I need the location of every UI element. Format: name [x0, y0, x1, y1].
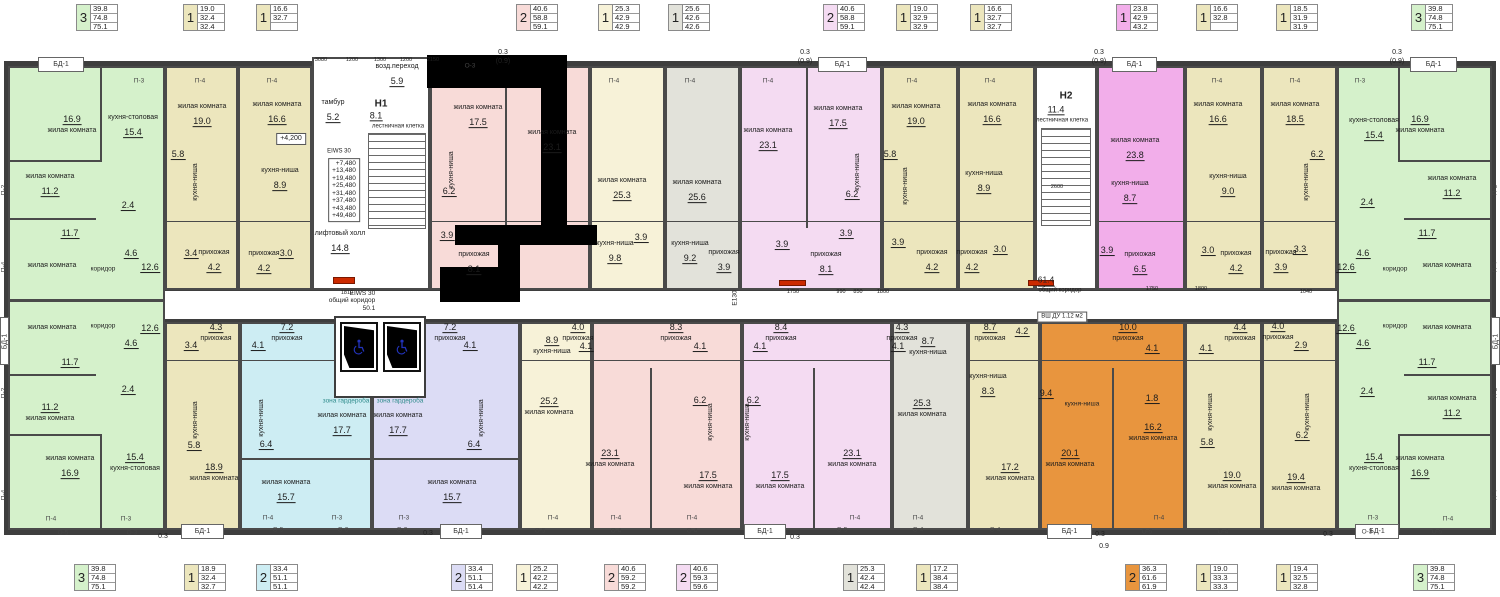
room-area: 6.2 — [845, 189, 860, 200]
room-area: 12.6 — [140, 262, 160, 273]
apartment-info-box[interactable]: 233.451.151.1 — [256, 564, 298, 591]
room-area: 23.1 — [542, 142, 562, 153]
area-values: 16.632.732.7 — [984, 5, 1011, 30]
room-area: 12.6 — [1336, 262, 1356, 273]
room-name: прихожая — [458, 251, 489, 259]
annotation-label: П-4 — [985, 77, 995, 84]
room-label: 5.8 — [1200, 432, 1215, 450]
room-name: жилая комната — [986, 475, 1035, 483]
annotation-label: 0.3 — [158, 533, 168, 541]
room-label: жилая комната11.2 — [1428, 395, 1477, 421]
room-label: 4.2 — [1015, 321, 1030, 339]
apartment-info-box[interactable]: 125.342.442.4 — [843, 564, 885, 591]
annotation-label: 0.3 — [1095, 531, 1105, 539]
room-label: жилая комната23.8 — [1111, 137, 1160, 163]
room-area: 8.1 — [467, 264, 482, 275]
room-area: 4.6 — [124, 338, 139, 349]
apartment-info-box[interactable]: 240.658.859.1 — [823, 4, 865, 31]
room-area: 7.2 — [443, 322, 458, 333]
area-values: 16.632.7 — [270, 5, 297, 30]
apartment-info-box[interactable]: 116.632.732.7 — [970, 4, 1012, 31]
interior-wall — [1404, 218, 1492, 220]
room-label: жилая комната — [28, 324, 77, 332]
room-area: 19.4 — [1286, 472, 1306, 483]
area-values: 19.033.333.3 — [1210, 565, 1237, 590]
room-label: жилая комната25.3 — [598, 177, 647, 203]
room-count: 2 — [605, 565, 618, 590]
annotation-label: О-3 — [127, 529, 138, 536]
interior-wall — [665, 221, 882, 222]
room-name: кухня-ниша — [596, 240, 633, 248]
interior-wall — [1404, 374, 1492, 376]
annotation-label: ВШ ДУ 1.12 м2 — [1037, 312, 1087, 323]
room-label: 19.4жилая комната — [1272, 467, 1321, 493]
apartment-info-box[interactable]: 125.642.642.6 — [668, 4, 710, 31]
room-area: 9.8 — [608, 253, 623, 264]
room-count: 1 — [185, 565, 198, 590]
room-area: 3.0 — [993, 244, 1008, 255]
room-name: жилая комната — [178, 103, 227, 111]
room-area: 11.7 — [1418, 357, 1437, 368]
room-area: 4.4 — [1233, 322, 1248, 333]
room-label: 25.3жилая комната — [898, 393, 947, 419]
room-name: жилая комната — [454, 104, 503, 112]
room-label: прихожая8.1 — [810, 251, 841, 277]
vent-shaft — [779, 280, 806, 286]
annotation-label: О-4 — [913, 526, 924, 533]
annotation-label: 0.3 — [1094, 49, 1104, 57]
room-area: 4.1 — [753, 341, 768, 352]
room-name: кухня-ниша — [902, 167, 910, 204]
room-area: 4.2 — [207, 262, 222, 273]
room-label: 23.1жилая комната — [586, 443, 635, 469]
room-name: жилая комната — [262, 479, 311, 487]
apartment-info-box[interactable]: 118.932.432.7 — [184, 564, 226, 591]
room-label: 5.8 — [171, 144, 186, 162]
room-count: 3 — [75, 565, 88, 590]
area-value: 32.7 — [271, 14, 297, 23]
room-label: 20.1жилая комната — [1046, 443, 1095, 469]
room-name: зона гардероба — [323, 397, 370, 404]
room-name: кухня-ниша — [1209, 173, 1246, 181]
room-name: жилая комната — [1271, 101, 1320, 109]
room-area: 23.1 — [600, 448, 620, 459]
room-count: 2 — [257, 565, 270, 590]
room-name: жилая комната — [253, 101, 302, 109]
room-area: 4.0 — [1271, 321, 1286, 332]
annotation-label: П-4 — [1491, 490, 1498, 500]
apartment-info-box[interactable]: 125.342.942.9 — [598, 4, 640, 31]
room-name: жилая комната — [598, 177, 647, 185]
room-label: 8.7прихожая — [974, 317, 1005, 343]
room-area: 16.2 — [1143, 422, 1163, 433]
balcony-box: БД-1 — [744, 524, 786, 539]
apartment-info-box[interactable]: 339.874.875.1 — [1411, 4, 1453, 31]
room-name: жилая комната — [28, 324, 77, 332]
annotation-label: (0.9) — [798, 58, 812, 66]
room-label: 4.1 — [891, 336, 906, 354]
room-area: 19.0 — [192, 116, 212, 127]
room-area: 19.0 — [906, 116, 926, 127]
annotation-label: П-4 — [907, 77, 917, 84]
balcony-label: БД-1 — [1426, 61, 1442, 68]
room-label: 8.9кухня-ниша — [533, 330, 570, 356]
apartment-1room-bottom-4[interactable] — [968, 322, 1040, 530]
room-label: прихожая4.2 — [198, 249, 229, 275]
area-values: 16.632.8 — [1210, 5, 1237, 30]
room-count: 1 — [1197, 5, 1210, 30]
apartment-info-box[interactable]: 339.874.875.1 — [1413, 564, 1455, 591]
annotation-label: (0.9) — [1390, 58, 1404, 66]
room-area: 4.1 — [891, 341, 906, 352]
room-name: прихожая — [956, 249, 987, 257]
room-name: прихожая — [1124, 251, 1155, 259]
area-values: 25.642.642.6 — [682, 5, 709, 30]
room-label: жилая комната16.6 — [1194, 101, 1243, 127]
room-label: 5.8 — [883, 144, 898, 162]
balcony-box: БД-1 — [440, 524, 482, 539]
area-value: 33.3 — [1211, 583, 1237, 591]
room-name: кухня-ниша — [1065, 400, 1100, 407]
room-area: 3.9 — [1100, 245, 1115, 256]
apartment-info-box[interactable]: 240.659.259.2 — [604, 564, 646, 591]
room-label: 16.9жилая комната — [48, 109, 97, 135]
area-value: 75.1 — [89, 583, 115, 591]
room-area: 5.2 — [326, 112, 341, 123]
room-area: 16.6 — [267, 114, 287, 125]
room-label: 15.4кухня-столовая — [1349, 447, 1399, 473]
annotation-label: О-5 — [1432, 528, 1443, 535]
room-label: 6.2 — [1295, 425, 1310, 443]
annotation-label: П-3 — [134, 77, 144, 84]
apartment-info-box[interactable]: 119.032.932.9 — [896, 4, 938, 31]
room-count: 2 — [517, 5, 530, 30]
room-count: 2 — [677, 565, 690, 590]
annotation-label: П-4 — [687, 514, 697, 521]
annotation-label: П-2 — [0, 388, 7, 398]
room-area: 3.4 — [184, 248, 199, 259]
room-name: жилая комната — [756, 483, 805, 491]
room-count: 1 — [1277, 5, 1290, 30]
room-area: 7.2 — [280, 322, 295, 333]
room-area: 4.1 — [1145, 343, 1160, 354]
room-label: кухня-ниша9.8 — [596, 240, 633, 266]
annotation-label: О-3 — [465, 62, 476, 69]
annotation-label: (0.9) — [496, 58, 510, 66]
room-name: кухня-ниша — [1207, 393, 1215, 430]
room-label: жилая комната17.5 — [814, 105, 863, 131]
room-label: кухня-ниша — [1065, 400, 1100, 407]
annotation-label: П-4 — [609, 77, 619, 84]
annotation-label: 0.3 — [498, 49, 508, 57]
room-label: 16.2жилая комната — [1129, 417, 1178, 443]
room-name: кухня-ниша — [1111, 180, 1148, 188]
room-label: 4.3прихожая — [200, 317, 231, 343]
room-name: прихожая — [271, 335, 302, 343]
area-value: 51.1 — [271, 583, 297, 591]
annotation-label: П-3 — [332, 514, 342, 521]
room-area: 20.1 — [1060, 448, 1080, 459]
annotation-label: П-4 — [548, 514, 558, 521]
room-name: кухня-ниша — [261, 167, 298, 175]
room-label: жилая комната18.5 — [1271, 101, 1320, 127]
apartment-info-box[interactable]: 123.842.943.2 — [1116, 4, 1158, 31]
room-label: кухня-ниша8.9 — [965, 170, 1002, 196]
room-name: жилая комната — [1111, 137, 1160, 145]
room-name: жилая комната — [1423, 324, 1472, 332]
balcony-label: БД-1 — [1, 333, 8, 349]
interior-wall — [806, 66, 808, 228]
annotation-label: П-4 — [1154, 514, 1164, 521]
room-area: 11.7 — [1418, 228, 1437, 239]
room-area: 11.7 — [61, 228, 80, 239]
room-label: жилая комната16.9 — [1396, 455, 1445, 481]
annotation-label: О-4 — [1218, 528, 1229, 535]
room-label: 23.1жилая комната — [828, 443, 877, 469]
room-area: 2.4 — [121, 384, 136, 395]
apartment-info-box[interactable]: 116.632.8 — [1196, 4, 1238, 31]
apartment-info-box[interactable]: 339.874.875.1 — [74, 564, 116, 591]
room-label: 11.7 — [1418, 352, 1437, 370]
room-label: кухня-ниша — [1207, 393, 1215, 430]
area-value: 51.4 — [466, 583, 492, 591]
room-area: 3.9 — [1274, 262, 1289, 273]
room-count: 2 — [452, 565, 465, 590]
annotation-label: 2600 — [1051, 184, 1063, 190]
area-values: 17.238.438.4 — [930, 565, 957, 590]
room-label: 25.2жилая комната — [525, 391, 574, 417]
area-value: 42.2 — [531, 583, 557, 591]
room-label: кухня-ниша9.0 — [1209, 173, 1246, 199]
room-area: 3.9 — [717, 262, 732, 273]
room-count: 3 — [77, 5, 90, 30]
area-values: 33.451.151.4 — [465, 565, 492, 590]
room-area: 4.1 — [251, 340, 266, 351]
room-label: 3.0 — [1201, 240, 1216, 258]
area-value: 75.1 — [1426, 23, 1452, 31]
apartment-info-box[interactable]: 240.659.359.6 — [676, 564, 718, 591]
area-values: 39.874.875.1 — [88, 565, 115, 590]
room-name: жилая комната — [46, 455, 95, 463]
room-area: 9.4 — [1039, 388, 1054, 399]
room-label: тамбур5.2 — [322, 99, 345, 125]
room-name: жилая комната — [48, 127, 97, 135]
balcony-label: БД-1 — [53, 61, 69, 68]
interior-wall — [968, 360, 1337, 361]
room-label: жилая комната19.0 — [178, 103, 227, 129]
room-name: жилая комната — [528, 129, 577, 137]
annotation-label: П-2 — [1491, 185, 1498, 195]
annotation-label: П-4 — [263, 514, 273, 521]
area-value: 32.4 — [198, 23, 224, 31]
room-label: 2.4 — [1360, 192, 1375, 210]
room-label: 7.2прихожая — [434, 317, 465, 343]
room-area: 25.3 — [612, 190, 632, 201]
room-area: 17.5 — [828, 118, 848, 129]
room-label: прихожая3.9 — [1265, 249, 1296, 275]
apartment-1room-bottom-5[interactable] — [1185, 322, 1262, 530]
room-name: жилая комната — [428, 479, 477, 487]
room-area: 11.2 — [41, 402, 60, 413]
room-name: жилая комната — [1208, 483, 1257, 491]
annotation-label: П-3 — [1355, 77, 1365, 84]
room-label: жилая комната11.2 — [26, 173, 75, 199]
room-label: 4.1 — [463, 335, 478, 353]
annotation-label: 1200 — [346, 57, 358, 63]
annotation-label: 1200 — [400, 57, 412, 63]
room-label: 8.3прихожая — [660, 317, 691, 343]
room-label: прихожая6.5 — [1124, 251, 1155, 277]
annotation-label: О-4 — [990, 526, 1001, 533]
apartment-2room-bottom-3[interactable] — [592, 322, 742, 530]
apartment-info-box[interactable]: 119.432.532.8 — [1276, 564, 1318, 591]
section-cut — [455, 225, 597, 245]
annotation-label: О-4 — [611, 527, 622, 534]
apartment-info-box[interactable]: 233.451.151.4 — [451, 564, 493, 591]
room-name: кухня-ниша — [909, 349, 946, 357]
annotation-label: H2 — [1060, 90, 1073, 102]
room-name: жилая комната — [744, 127, 793, 135]
room-name: кухня-столовая — [108, 114, 158, 122]
area-values: 40.658.859.1 — [837, 5, 864, 30]
area-values: 18.932.432.7 — [198, 565, 225, 590]
room-count: 2 — [824, 5, 837, 30]
apartment-info-box[interactable]: 236.361.661.9 — [1125, 564, 1167, 591]
room-label: 4.1 — [693, 336, 708, 354]
annotation-label: П-3 — [121, 515, 131, 522]
room-area: 4.2 — [965, 262, 980, 273]
balcony-box: БД-1 — [1491, 317, 1500, 365]
room-label: жилая комната23.1 — [744, 127, 793, 153]
area-value: 59.2 — [619, 583, 645, 591]
room-label: 4.6 — [124, 243, 139, 261]
balcony-label: БД-1 — [1127, 61, 1143, 68]
apartment-info-box[interactable]: 118.531.931.9 — [1276, 4, 1318, 31]
apartment-info-box[interactable]: 116.632.7 — [256, 4, 298, 31]
room-area: 15.7 — [442, 492, 462, 503]
interior-wall — [100, 434, 102, 530]
room-label: возд.переход5.9 — [375, 63, 418, 89]
interior-wall — [813, 368, 815, 530]
room-area: 9.2 — [683, 253, 698, 264]
area-values: 40.658.859.1 — [530, 5, 557, 30]
area-value: 42.6 — [683, 23, 709, 31]
room-area: 3.9 — [891, 237, 906, 248]
room-area: 23.1 — [842, 448, 862, 459]
room-label: коридор — [91, 322, 116, 329]
interior-wall — [1097, 221, 1337, 222]
room-area: 15.4 — [123, 127, 143, 138]
room-label: 7.2прихожая — [271, 317, 302, 343]
annotation-label: H1 — [375, 98, 388, 110]
area-values: 25.342.442.4 — [857, 565, 884, 590]
room-area: 1.8 — [1145, 393, 1160, 404]
room-area: 17.2 — [1000, 462, 1020, 473]
apartment-info-box[interactable]: 125.242.242.2 — [516, 564, 558, 591]
apartment-info-box[interactable]: 240.658.859.1 — [516, 4, 558, 31]
room-label: кухня-ниша — [707, 403, 715, 440]
room-label: 10.0прихожая — [1112, 317, 1143, 343]
apartment-info-box[interactable]: 339.874.875.1 — [76, 4, 118, 31]
room-name: кухня-ниша — [1303, 163, 1311, 200]
room-area: 15.4 — [1364, 452, 1384, 463]
room-name: прихожая — [974, 335, 1005, 343]
room-name: жилая комната — [684, 483, 733, 491]
apartment-info-box[interactable]: 119.033.333.3 — [1196, 564, 1238, 591]
balcony-label: БД-1 — [1062, 528, 1078, 535]
interior-wall — [8, 299, 165, 302]
room-label: 3.9 — [839, 223, 854, 241]
room-name: жилая комната — [1046, 461, 1095, 469]
room-area: 16.9 — [62, 114, 82, 125]
annotation-label: П-4 — [763, 77, 773, 84]
balcony-box: БД-1 — [181, 524, 224, 539]
room-label: жилая комната — [1423, 262, 1472, 270]
apartment-info-box[interactable]: 119.032.432.4 — [183, 4, 225, 31]
room-name: коридор — [91, 322, 116, 329]
room-label: 4.1 — [251, 335, 266, 353]
room-label: прихожая4.2 — [956, 249, 987, 275]
room-label: 6.2 — [1310, 144, 1325, 162]
interior-wall — [520, 360, 892, 361]
room-name: жилая комната — [190, 475, 239, 483]
apartment-info-box[interactable]: 117.238.438.4 — [916, 564, 958, 591]
room-area: 3.9 — [839, 228, 854, 239]
annotation-label: О-3 — [1362, 528, 1373, 535]
room-name: кухня-ниша — [969, 373, 1006, 381]
annotation-label: 61.4 — [1038, 276, 1055, 287]
room-area: 8.3 — [981, 386, 996, 397]
room-name: кухня-ниша — [533, 348, 570, 356]
annotation-label: 1040 — [1300, 289, 1312, 295]
room-label: 9.4 — [1039, 383, 1054, 401]
annotation-label: О-3 — [397, 526, 408, 533]
balcony-label: БД-1 — [1492, 333, 1499, 349]
balcony-label: БД-1 — [757, 528, 773, 535]
stairs-icon — [1041, 128, 1091, 226]
interior-wall — [1398, 160, 1492, 162]
room-label: 16.9жилая комната — [1396, 109, 1445, 135]
room-label: жилая комната17.7 — [374, 412, 423, 438]
room-name: прихожая — [810, 251, 841, 259]
annotation-label: П-4 — [685, 77, 695, 84]
annotation-label: П-4 — [1212, 77, 1222, 84]
room-label: 3.9 — [440, 225, 455, 243]
interior-wall — [372, 458, 520, 460]
room-name: кухня-ниша — [744, 403, 752, 440]
annotation-label: 1300 — [374, 57, 386, 63]
room-area: 8.1 — [819, 264, 834, 275]
annotation-label: П-2 — [0, 185, 7, 195]
elevator-icon — [340, 322, 378, 372]
room-name: прихожая — [248, 250, 279, 258]
room-label: 4.6 — [1356, 333, 1371, 351]
room-area: 17.7 — [388, 425, 408, 436]
room-area: 10.0 — [1118, 322, 1138, 333]
room-name: прихожая — [434, 335, 465, 343]
room-count: 1 — [517, 565, 530, 590]
area-value: 32.7 — [199, 583, 225, 591]
apartment-1room-bottom-1[interactable] — [165, 322, 240, 530]
annotation-label: О-5 — [58, 529, 69, 536]
room-area: 2.4 — [1360, 197, 1375, 208]
room-label: кухня-ниша — [902, 167, 910, 204]
room-label: жилая комната15.7 — [428, 479, 477, 505]
room-label: 6.2 — [845, 184, 860, 202]
room-label: 11.7 — [1418, 223, 1437, 241]
room-name: кухня-столовая — [1349, 465, 1399, 473]
annotation-label: 0.3 — [1323, 531, 1333, 539]
